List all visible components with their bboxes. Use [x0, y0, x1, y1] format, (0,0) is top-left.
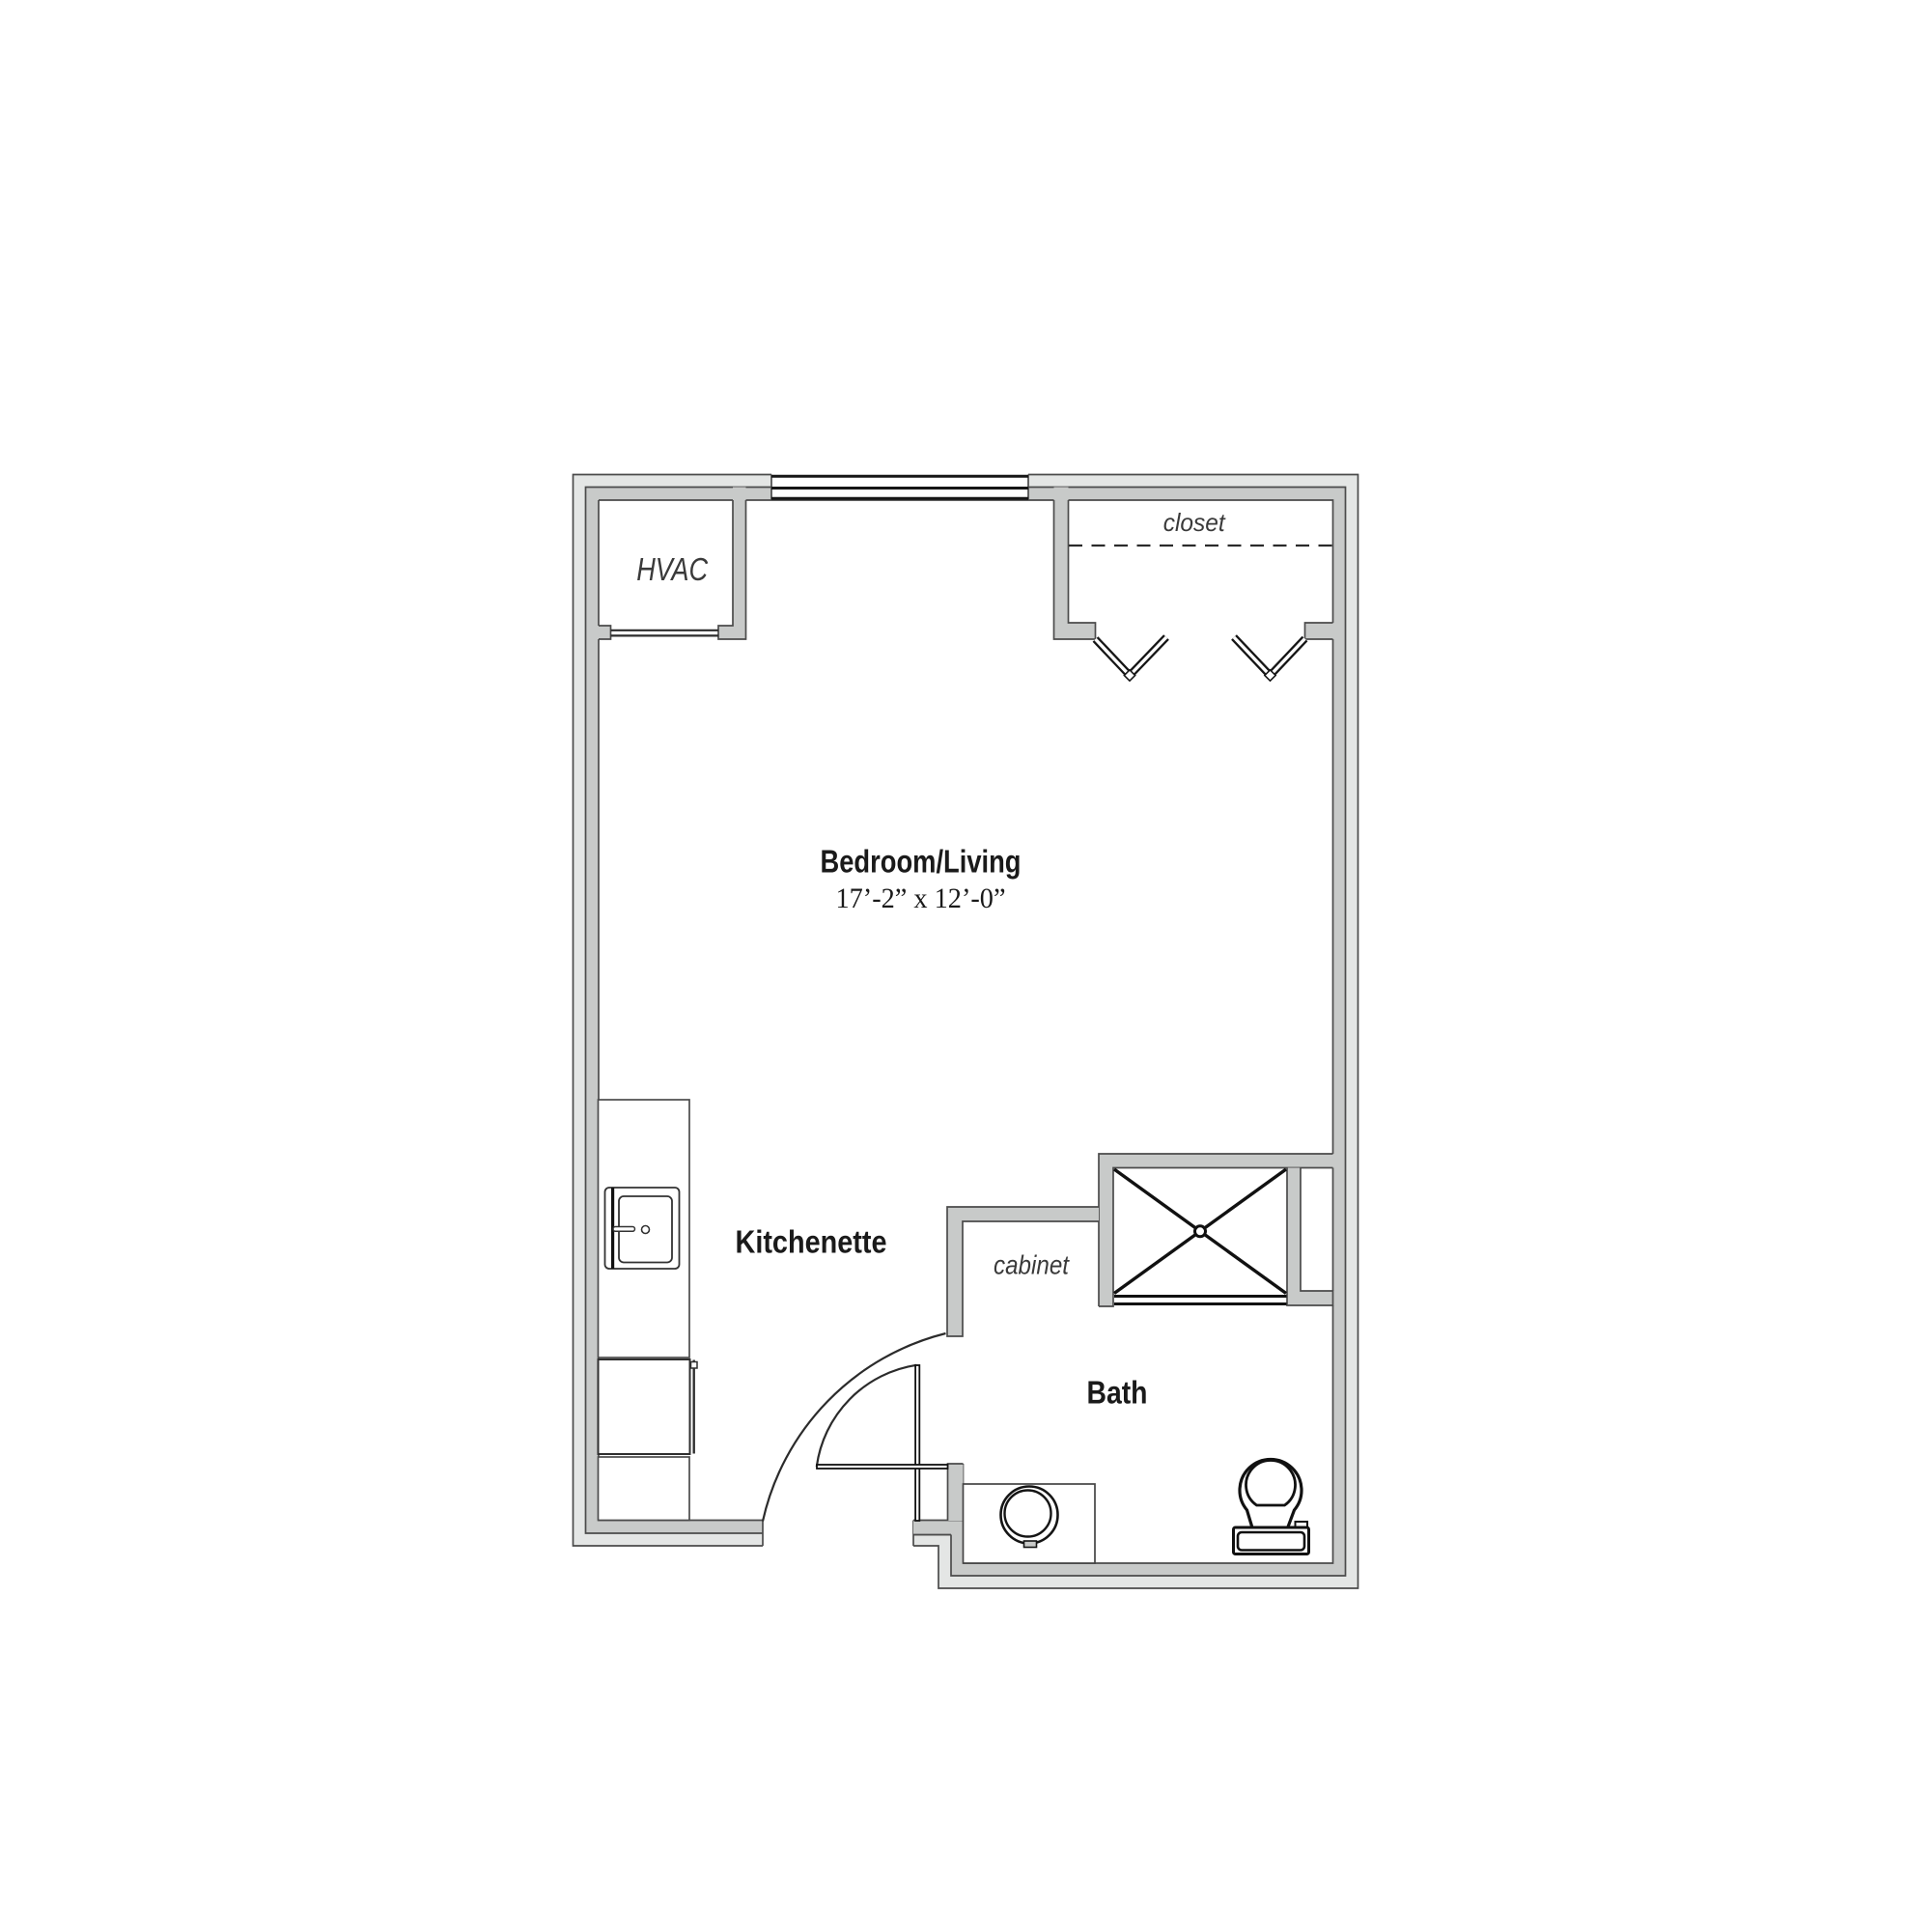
svg-text:closet: closet	[1163, 508, 1227, 537]
svg-text:17’-2” x 12’-0”: 17’-2” x 12’-0”	[836, 882, 1006, 914]
svg-text:Bedroom/Living: Bedroom/Living	[821, 844, 1022, 880]
svg-text:HVAC: HVAC	[636, 551, 709, 587]
svg-text:cabinet: cabinet	[994, 1249, 1070, 1279]
svg-text:Kitchenette: Kitchenette	[736, 1224, 887, 1260]
svg-text:Bath: Bath	[1087, 1375, 1148, 1411]
